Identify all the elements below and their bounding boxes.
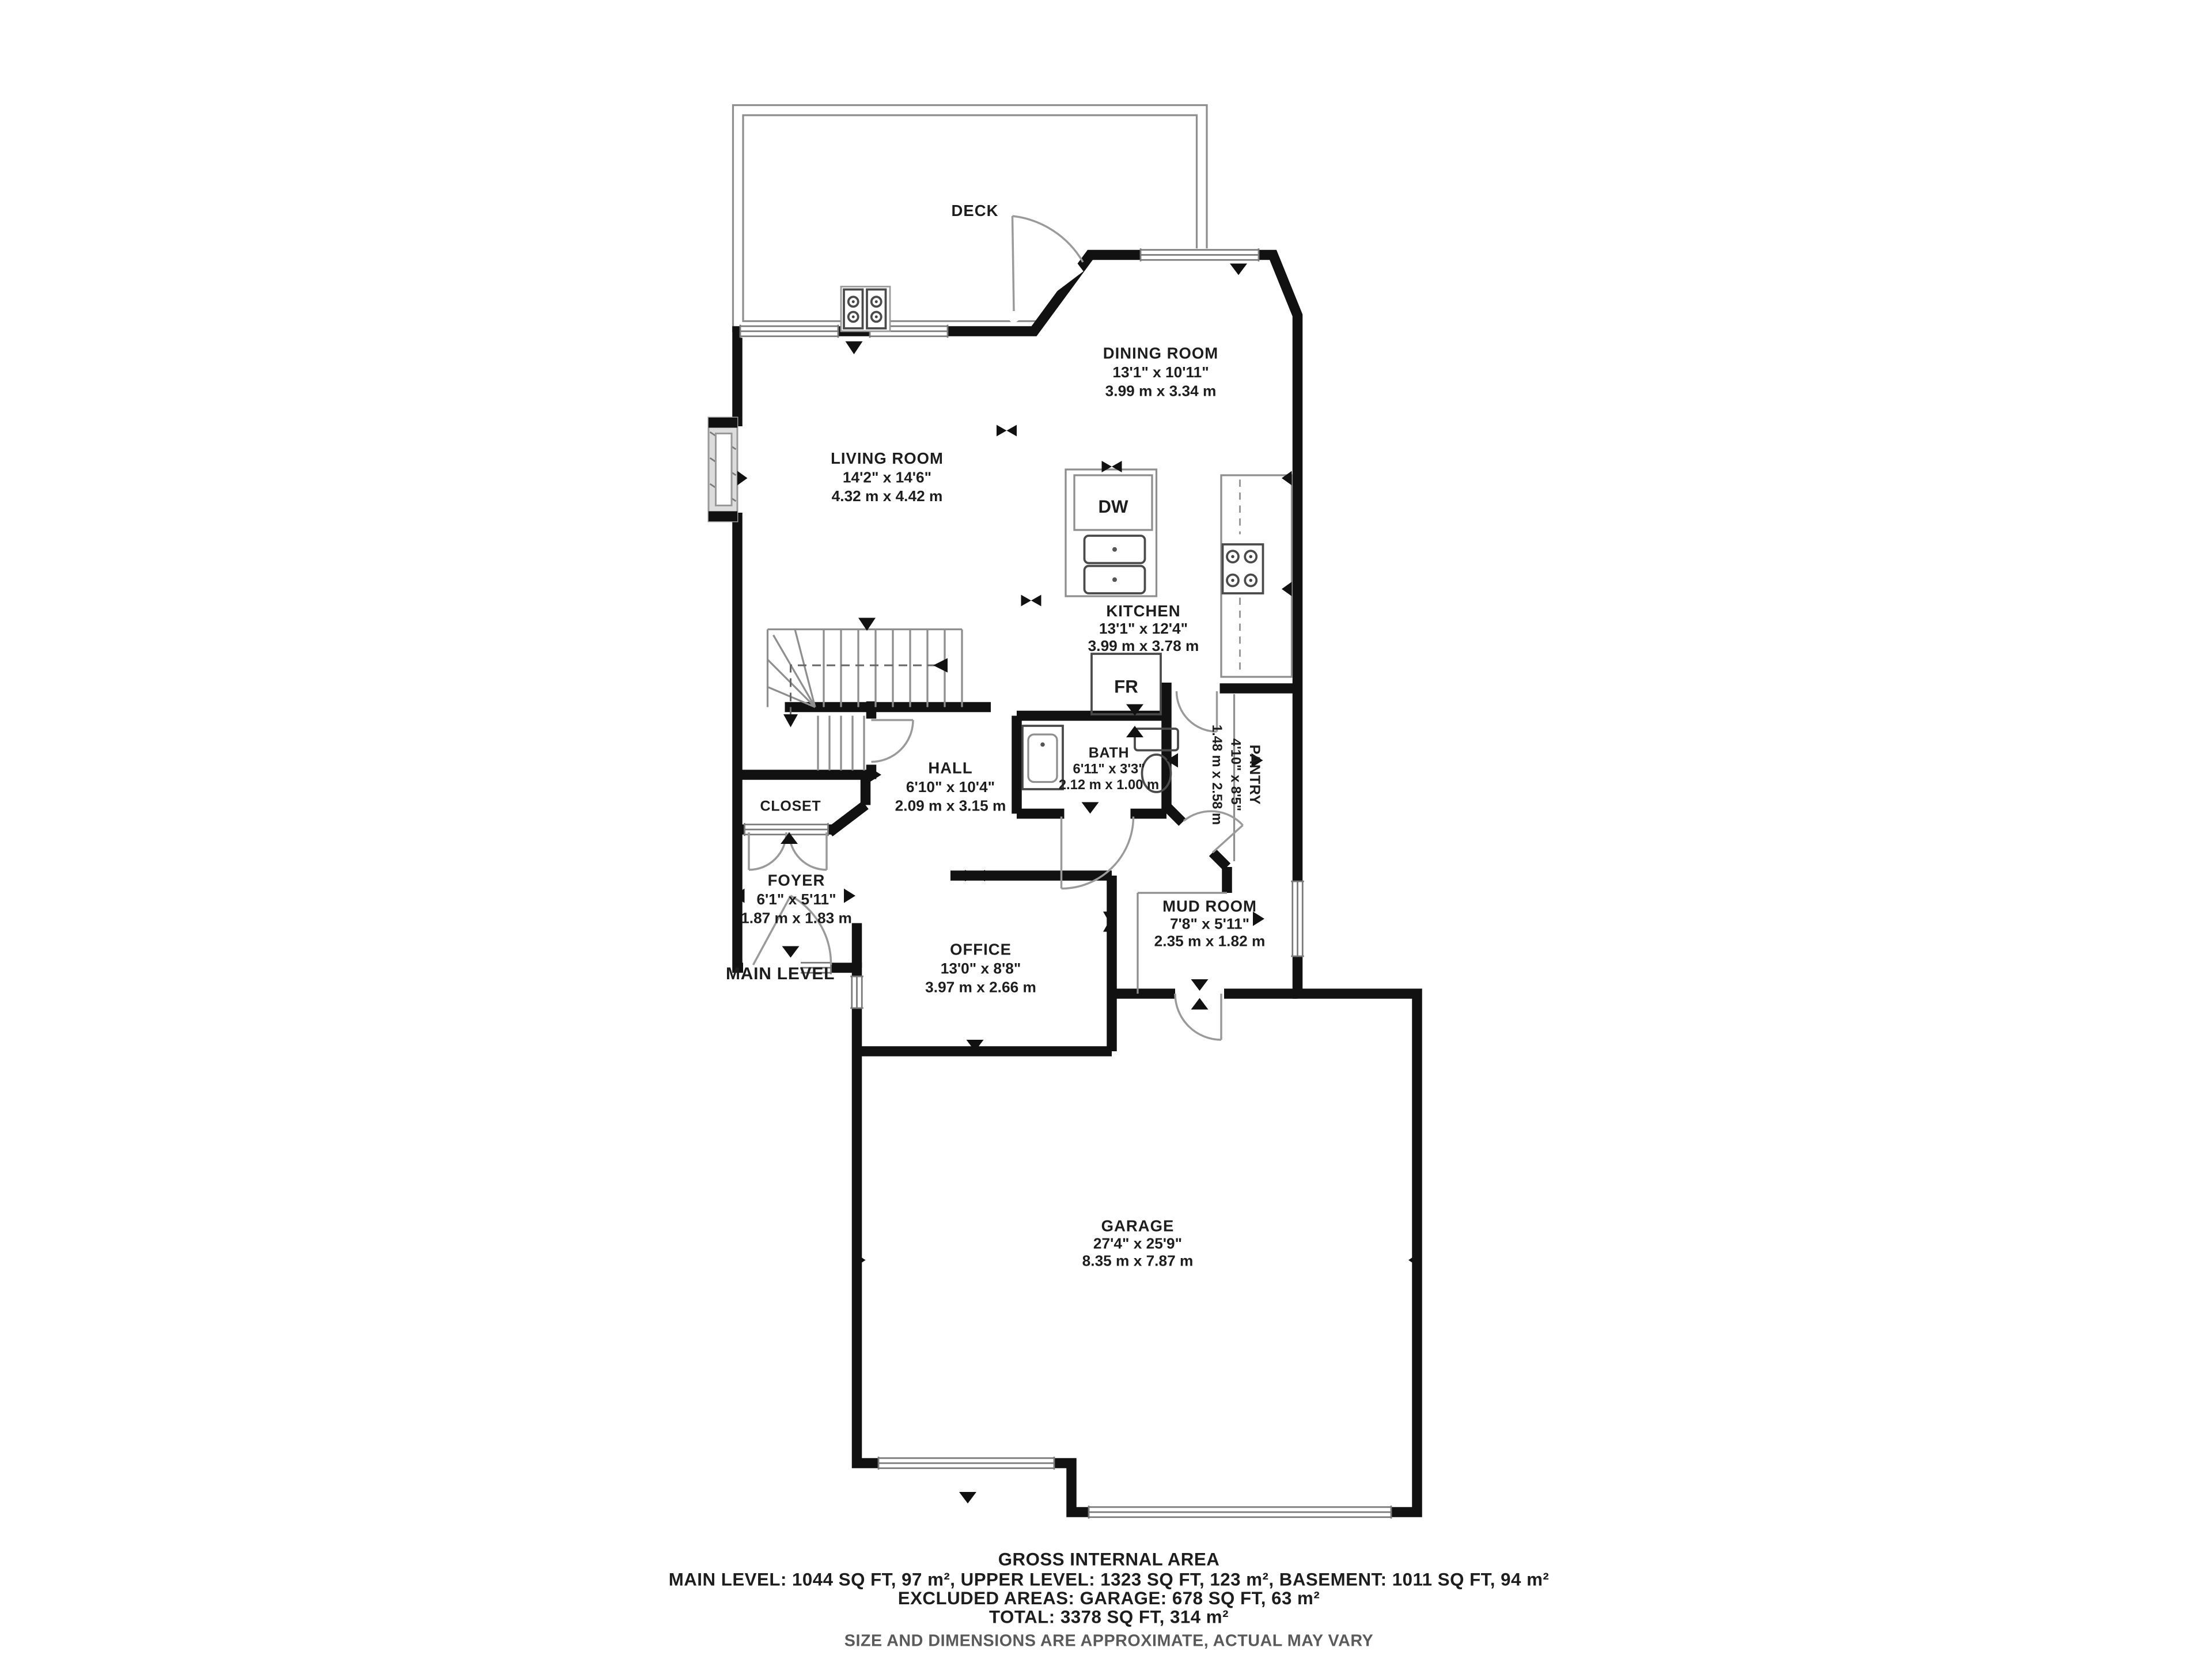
dining-room-dims-ft: 13'1" x 10'11" [1112,363,1209,381]
foyer-dims-ft: 6'1" x 5'11" [756,891,836,908]
mud-room-dims-ft: 7'8" x 5'11" [1170,915,1249,933]
foyer-dims-m: 1.87 m x 1.83 m [741,910,852,927]
hall-label: HALL [928,759,972,777]
garage-door-left [878,1457,1054,1470]
bath-dims-ft: 6'11" x 3'3" [1073,762,1145,777]
living-room-dims-ft: 14'2" x 14'6" [843,469,931,486]
floor-level-label: MAIN LEVEL [726,964,835,983]
bath-dims-m: 2.12 m x 1.00 m [1059,777,1159,793]
footer-title: GROSS INTERNAL AREA [998,1550,1220,1570]
hall-dims-m: 2.09 m x 3.15 m [895,797,1006,815]
garage-dims-ft: 27'4" x 25'9" [1093,1235,1182,1252]
mud-room-label: MUD ROOM [1162,897,1257,915]
floor-plan-page: DECK DINING ROOM 13'1" x 10'11" 3.99 m x… [0,0,2212,1659]
bbq-grill-icon [841,287,890,332]
office-dims-m: 3.97 m x 2.66 m [925,979,1036,996]
mud-room-dims-m: 2.35 m x 1.82 m [1154,933,1266,950]
footer-area-summary: GROSS INTERNAL AREA MAIN LEVEL: 1044 SQ … [669,1550,1550,1650]
footer-excluded: EXCLUDED AREAS: GARAGE: 678 SQ FT, 63 m² [898,1588,1320,1608]
hall-dims-ft: 6'10" x 10'4" [906,778,995,796]
dishwasher-label: DW [1098,497,1128,517]
kitchen-label: KITCHEN [1106,602,1180,620]
closet-label: CLOSET [760,798,821,815]
living-room-dims-m: 4.32 m x 4.42 m [832,487,943,505]
living-room-label: LIVING ROOM [831,449,944,467]
deck-label: DECK [952,202,999,219]
bath-label: BATH [1089,745,1130,761]
footer-disclaimer: SIZE AND DIMENSIONS ARE APPROXIMATE, ACT… [844,1632,1373,1650]
pantry-label: PANTRY [1247,745,1263,805]
dining-room-window [1141,248,1259,262]
dining-room-label: DINING ROOM [1103,344,1218,362]
pantry-dims-m: 1.48 m x 2.58 m [1209,725,1225,825]
office-label: OFFICE [950,941,1012,959]
kitchen-dims-m: 3.99 m x 3.78 m [1088,637,1199,654]
office-window [850,976,863,1008]
dining-room-dims-m: 3.99 m x 3.34 m [1105,382,1217,400]
garage-dims-m: 8.35 m x 7.87 m [1082,1252,1194,1270]
fireplace-icon [709,418,748,521]
exterior-walls [737,255,1417,1513]
garage-door-main [1089,1506,1391,1519]
foyer-label: FOYER [768,872,825,889]
garage-door-marker [959,1492,976,1503]
footer-levels: MAIN LEVEL: 1044 SQ FT, 97 m², UPPER LEV… [669,1570,1550,1590]
pantry-dims-ft: 4'10" x 8'5" [1228,738,1244,811]
office-dims-ft: 13'0" x 8'8" [941,960,1021,977]
fridge-label: FR [1114,677,1138,697]
floor-plan-drawing: DECK DINING ROOM 13'1" x 10'11" 3.99 m x… [0,0,2212,1659]
footer-total: TOTAL: 3378 SQ FT, 314 m² [989,1607,1229,1627]
kitchen-dims-ft: 13'1" x 12'4" [1099,620,1188,637]
mud-room-window [1291,881,1304,956]
garage-label: GARAGE [1101,1217,1175,1235]
